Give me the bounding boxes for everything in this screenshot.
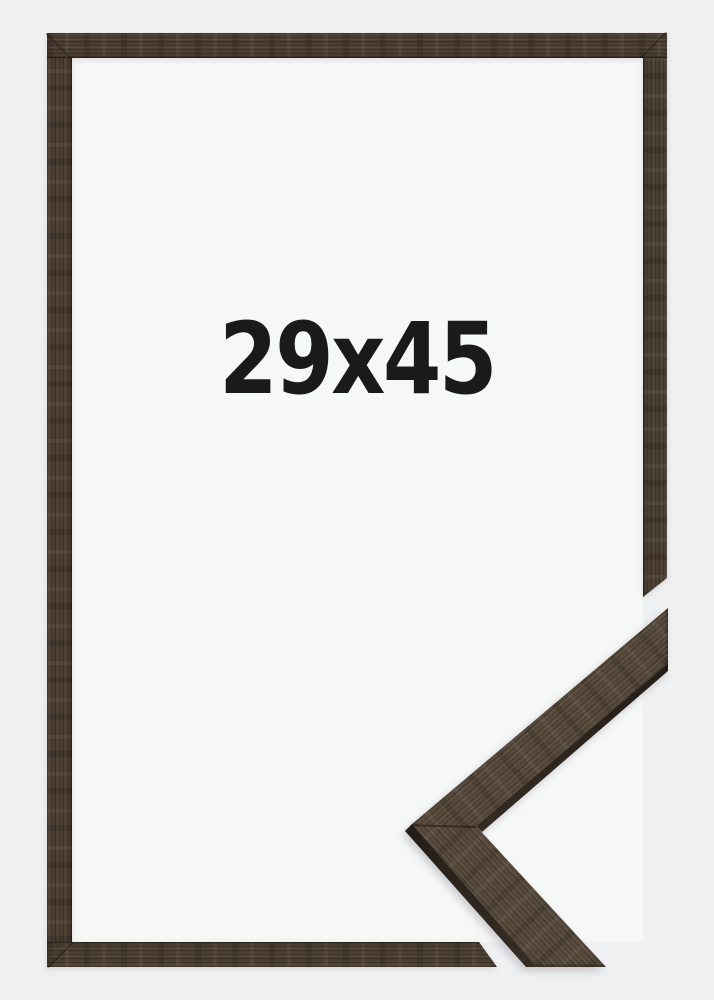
- size-label: 29x45: [94, 310, 621, 409]
- product-image: 29x45: [0, 0, 714, 1000]
- corner-sample-upper-arm: [412, 608, 668, 826]
- frame-corner-sample: [0, 0, 714, 1000]
